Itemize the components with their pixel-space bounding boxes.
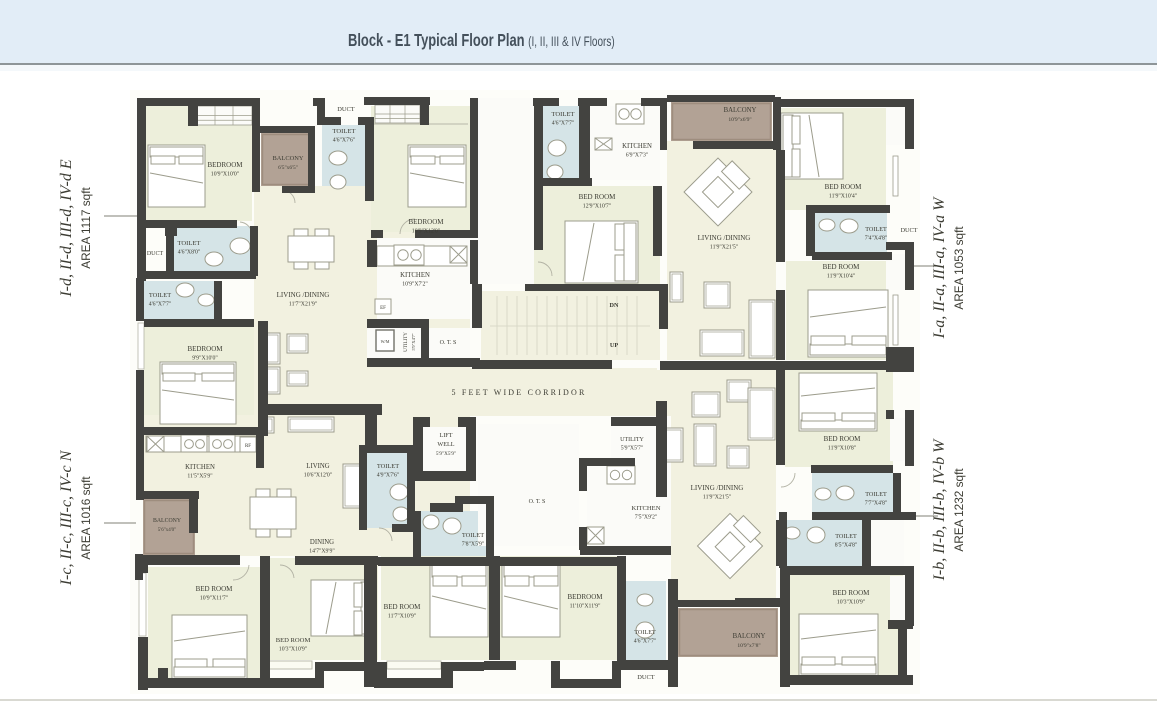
svg-text:LIFT: LIFT — [439, 432, 452, 439]
svg-text:8'5"X4'8": 8'5"X4'8" — [835, 543, 858, 549]
svg-text:DN: DN — [610, 302, 619, 309]
svg-text:BED ROOM: BED ROOM — [833, 589, 871, 597]
svg-text:12'9"X10'7": 12'9"X10'7" — [583, 204, 611, 210]
svg-text:4'9"X7'6": 4'9"X7'6" — [377, 473, 400, 479]
svg-text:TOILET: TOILET — [865, 491, 887, 498]
svg-text:BED ROOM: BED ROOM — [825, 183, 863, 191]
svg-text:7'5"X9'2": 7'5"X9'2" — [635, 515, 658, 521]
svg-text:11'7"X10'9": 11'7"X10'9" — [388, 614, 416, 620]
svg-text:7'8"X5'9": 7'8"X5'9" — [462, 542, 485, 548]
svg-text:BALCONY: BALCONY — [273, 155, 304, 162]
svg-text:AREA 1016 sqft: AREA 1016 sqft — [79, 476, 93, 560]
svg-text:I-d, II-d, III-d, IV-d E: I-d, II-d, III-d, IV-d E — [58, 159, 75, 298]
svg-text:TOILET: TOILET — [333, 128, 356, 135]
svg-text:10'3"X10'9": 10'3"X10'9" — [837, 600, 865, 606]
svg-text:4'6"X7'6": 4'6"X7'6" — [333, 138, 356, 144]
svg-text:TOILET: TOILET — [462, 532, 484, 539]
svg-text:BED ROOM: BED ROOM — [579, 193, 617, 201]
svg-text:BALCONY: BALCONY — [724, 107, 757, 114]
svg-text:KITCHEN: KITCHEN — [400, 272, 430, 279]
svg-text:AREA 1232 sqft: AREA 1232 sqft — [952, 468, 966, 552]
svg-text:TOILET: TOILET — [835, 533, 857, 540]
svg-text:BEDROOM: BEDROOM — [567, 593, 603, 601]
svg-text:14'7"X9'9": 14'7"X9'9" — [309, 549, 335, 555]
svg-text:4'6"X8'0": 4'6"X8'0" — [178, 250, 201, 256]
svg-text:6'5"x6'5": 6'5"x6'5" — [278, 165, 298, 171]
svg-text:O. T. S: O. T. S — [529, 499, 546, 505]
svg-text:BEDROOM: BEDROOM — [408, 218, 444, 226]
svg-text:DUCT: DUCT — [637, 674, 654, 681]
svg-text:9'9"X10'0": 9'9"X10'0" — [192, 356, 218, 362]
svg-text:4'6"X7'7": 4'6"X7'7" — [552, 121, 575, 127]
svg-text:11'10"X11'9": 11'10"X11'9" — [570, 604, 601, 610]
svg-text:BED ROOM: BED ROOM — [824, 435, 862, 443]
svg-text:AREA 1053 sqft: AREA 1053 sqft — [952, 226, 966, 310]
svg-text:I-a, II-a, III-a, IV-a W: I-a, II-a, III-a, IV-a W — [931, 196, 948, 340]
svg-text:TOILET: TOILET — [865, 226, 887, 233]
svg-text:10'9"X12'0": 10'9"X12'0" — [412, 229, 440, 235]
svg-text:4'6"X7'7": 4'6"X7'7" — [634, 639, 657, 645]
svg-text:DUCT: DUCT — [337, 106, 354, 113]
svg-text:10'9"X7'2": 10'9"X7'2" — [402, 282, 428, 288]
svg-text:W/M: W/M — [381, 339, 390, 344]
svg-text:UP: UP — [610, 342, 618, 349]
svg-text:EF: EF — [380, 306, 386, 311]
svg-text:5 FEET WIDE CORRIDOR: 5 FEET WIDE CORRIDOR — [451, 388, 586, 397]
svg-text:11'9"X10'4": 11'9"X10'4" — [829, 194, 857, 200]
svg-text:KITCHEN: KITCHEN — [185, 464, 215, 471]
svg-text:LIVING: LIVING — [306, 463, 329, 470]
svg-text:7'4"X4'8": 7'4"X4'8" — [865, 236, 888, 242]
svg-text:5'9"X5'7": 5'9"X5'7" — [621, 446, 644, 452]
svg-text:KITCHEN: KITCHEN — [632, 505, 661, 512]
svg-text:10'9"X11'7": 10'9"X11'7" — [200, 596, 228, 602]
svg-text:Block - E1 Typical Floor Plan: Block - E1 Typical Floor Plan (I, II, II… — [348, 31, 615, 50]
svg-text:KITCHEN: KITCHEN — [622, 143, 652, 150]
svg-text:TOILET: TOILET — [178, 240, 201, 247]
svg-text:11'5"X5'9": 11'5"X5'9" — [187, 474, 212, 480]
svg-text:11'9"X10'4": 11'9"X10'4" — [827, 274, 855, 280]
svg-text:LIVING /DINING: LIVING /DINING — [691, 484, 744, 492]
svg-text:RF: RF — [245, 444, 251, 449]
svg-text:DINING: DINING — [310, 539, 334, 546]
svg-text:7'7"X4'8": 7'7"X4'8" — [865, 501, 888, 507]
svg-text:10'3"X10'9": 10'3"X10'9" — [279, 647, 307, 653]
svg-text:10'9"x7'8": 10'9"x7'8" — [737, 643, 760, 649]
svg-text:BED ROOM: BED ROOM — [196, 585, 234, 593]
svg-text:DUCT: DUCT — [901, 227, 918, 234]
svg-text:TOILET: TOILET — [377, 463, 399, 470]
svg-text:10'6"X12'0": 10'6"X12'0" — [304, 473, 332, 479]
svg-text:5'9"X4'7": 5'9"X4'7" — [411, 333, 416, 350]
svg-text:I-c, II-c, III-c, IV-c N: I-c, II-c, III-c, IV-c N — [58, 449, 75, 586]
svg-text:I-b, II-b, III-b, IV-b W: I-b, II-b, III-b, IV-b W — [931, 438, 948, 582]
svg-text:5'9"X5'9": 5'9"X5'9" — [436, 451, 456, 457]
svg-text:UTILITY: UTILITY — [620, 437, 644, 443]
svg-text:BED ROOM: BED ROOM — [384, 603, 422, 611]
svg-text:5'6"x4'0": 5'6"x4'0" — [158, 528, 176, 533]
svg-text:11'7"X21'9": 11'7"X21'9" — [289, 302, 317, 308]
svg-text:TOILET: TOILET — [634, 629, 656, 636]
svg-text:TOILET: TOILET — [149, 292, 171, 299]
svg-text:AREA 1117 sqft: AREA 1117 sqft — [79, 187, 93, 269]
svg-text:DUCT: DUCT — [147, 251, 164, 257]
svg-text:11'9"X21'5": 11'9"X21'5" — [703, 495, 731, 501]
svg-text:TOILET: TOILET — [552, 111, 575, 118]
svg-text:10'9"x6'9": 10'9"x6'9" — [728, 117, 751, 123]
svg-text:BEDROOM: BEDROOM — [187, 345, 223, 353]
svg-text:LIVING /DINING: LIVING /DINING — [277, 291, 330, 299]
svg-text:4'6"X7'7": 4'6"X7'7" — [149, 302, 172, 308]
svg-text:10'9"X10'0": 10'9"X10'0" — [211, 172, 239, 178]
svg-text:BALCONY: BALCONY — [733, 633, 766, 640]
svg-text:11'9"X10'8": 11'9"X10'8" — [828, 446, 856, 452]
svg-text:11'9"X21'5": 11'9"X21'5" — [710, 245, 738, 251]
svg-text:O. T. S: O. T. S — [440, 340, 457, 346]
svg-text:BED ROOM: BED ROOM — [276, 637, 311, 644]
svg-text:LIVING /DINING: LIVING /DINING — [698, 234, 751, 242]
svg-text:WELL: WELL — [437, 441, 454, 448]
svg-text:BED ROOM: BED ROOM — [823, 263, 861, 271]
svg-text:6'9"X7'3": 6'9"X7'3" — [626, 153, 649, 159]
svg-text:BALCONY: BALCONY — [153, 518, 182, 524]
svg-text:UTILITY: UTILITY — [404, 332, 409, 352]
svg-text:BEDROOM: BEDROOM — [207, 161, 243, 169]
